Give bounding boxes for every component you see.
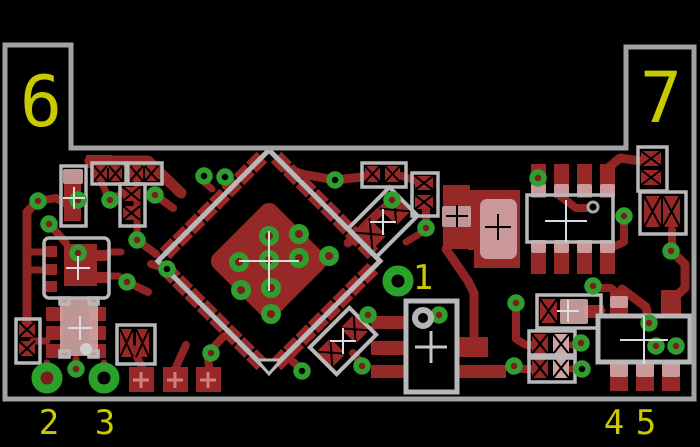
component-body-overlay bbox=[610, 296, 628, 308]
designator-label-4: 4 bbox=[604, 403, 624, 443]
via bbox=[587, 280, 599, 292]
via bbox=[420, 222, 432, 234]
designator-label-2: 2 bbox=[39, 403, 59, 443]
copper-pad bbox=[44, 264, 57, 275]
copper-pad bbox=[455, 365, 506, 378]
designator-label-3: 3 bbox=[95, 403, 115, 443]
via bbox=[43, 218, 55, 230]
via bbox=[131, 234, 143, 246]
designator-label-5: 5 bbox=[636, 403, 656, 443]
thermal-via bbox=[234, 283, 248, 297]
via bbox=[576, 363, 588, 375]
thermal-via bbox=[292, 251, 306, 265]
pcb-layout-canvas[interactable]: 6712345 bbox=[0, 0, 700, 447]
component-body-overlay bbox=[63, 169, 83, 184]
through-hole-pad bbox=[93, 367, 115, 389]
via bbox=[650, 340, 662, 352]
via bbox=[532, 172, 544, 184]
through-hole-pad bbox=[387, 270, 409, 292]
via bbox=[161, 263, 173, 275]
via bbox=[296, 365, 308, 377]
via bbox=[433, 309, 445, 321]
soic-pin1-dot bbox=[588, 202, 598, 212]
designator-label-1: 1 bbox=[413, 258, 433, 298]
thermal-via bbox=[264, 307, 278, 321]
via bbox=[508, 360, 520, 372]
copper-pad bbox=[443, 185, 470, 206]
thermal-via bbox=[264, 281, 278, 295]
pcb-viewport: 6712345 bbox=[0, 0, 700, 447]
via bbox=[329, 174, 341, 186]
copper-pad bbox=[455, 337, 488, 357]
via bbox=[32, 195, 44, 207]
via bbox=[70, 363, 82, 375]
via bbox=[219, 171, 231, 183]
thermal-via bbox=[322, 249, 336, 263]
via bbox=[618, 210, 630, 222]
through-hole-pad bbox=[36, 367, 58, 389]
via bbox=[104, 194, 116, 206]
designator-label-7: 7 bbox=[640, 57, 682, 139]
via bbox=[386, 194, 398, 206]
designator-label-6: 6 bbox=[20, 61, 62, 143]
thermal-via bbox=[292, 227, 306, 241]
via bbox=[670, 340, 682, 352]
via bbox=[362, 309, 374, 321]
via bbox=[198, 170, 210, 182]
mount-hole-ring bbox=[415, 310, 431, 326]
copper-pad bbox=[44, 281, 57, 292]
sot23-pin1-dot bbox=[82, 345, 90, 353]
copper-pad bbox=[44, 246, 57, 257]
via bbox=[149, 189, 161, 201]
copper-pad bbox=[443, 227, 470, 249]
via bbox=[356, 360, 368, 372]
via bbox=[121, 276, 133, 288]
via bbox=[205, 347, 217, 359]
via bbox=[575, 337, 587, 349]
via bbox=[665, 245, 677, 257]
via bbox=[510, 297, 522, 309]
